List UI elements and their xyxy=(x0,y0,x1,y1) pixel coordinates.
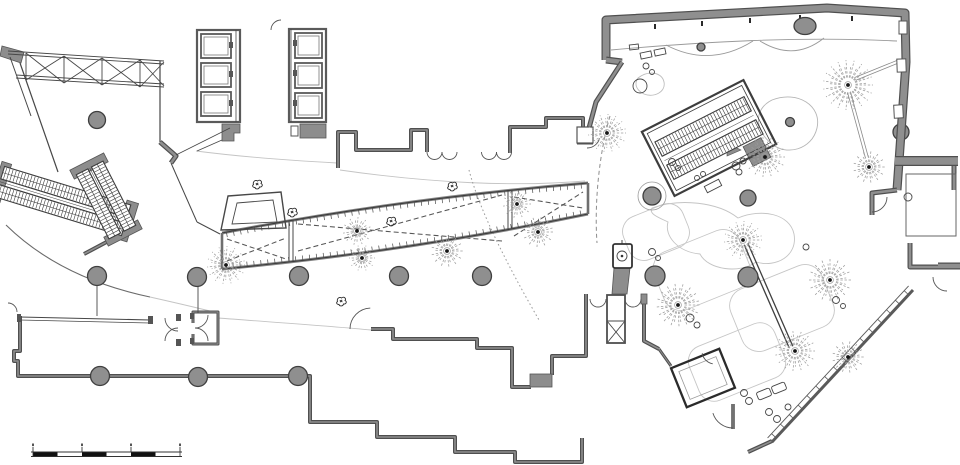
tree-symbol xyxy=(823,60,873,110)
column xyxy=(91,367,110,386)
scale-bar xyxy=(31,444,182,457)
door-swing-arc xyxy=(713,413,733,428)
tree-symbol xyxy=(775,331,815,371)
wall-fills-layer xyxy=(0,46,741,294)
tree-symbol xyxy=(724,221,762,259)
door-swing-arc xyxy=(8,303,17,312)
column xyxy=(697,43,705,51)
column xyxy=(290,267,309,286)
door-swing-arc xyxy=(427,152,442,160)
door-swing-arc xyxy=(482,152,497,160)
furniture-layer xyxy=(617,63,912,423)
door-swing-arc xyxy=(442,152,457,160)
escalators-layer xyxy=(0,80,776,239)
door-swing-arc xyxy=(497,152,512,160)
door-swing-arc xyxy=(195,328,208,341)
elevator-banks-layer xyxy=(197,29,326,136)
door-swing-arc xyxy=(933,277,947,291)
door-swing-arc xyxy=(590,299,606,307)
column xyxy=(794,18,816,35)
column xyxy=(473,267,492,286)
double-lines-layer xyxy=(744,61,897,348)
column xyxy=(390,267,409,286)
plan-svg xyxy=(0,0,960,465)
tree-symbol xyxy=(809,259,851,301)
door-swing-arc xyxy=(625,299,641,307)
tree-symbol xyxy=(343,217,371,245)
door-swing-arc xyxy=(195,315,208,328)
person-sketch xyxy=(448,182,458,191)
tree-symbol xyxy=(503,190,531,218)
escalator xyxy=(642,80,776,196)
column xyxy=(740,190,756,206)
door-swing-arc xyxy=(350,308,370,329)
column xyxy=(643,187,661,205)
column xyxy=(786,118,795,127)
floor-plan xyxy=(0,0,960,465)
column xyxy=(738,267,758,287)
column xyxy=(88,267,107,286)
column xyxy=(189,368,208,387)
person-sketch xyxy=(253,180,263,189)
door-swing-arc xyxy=(271,20,281,30)
person-sketch xyxy=(337,297,347,306)
tree-symbol xyxy=(207,246,245,284)
tree-symbol xyxy=(852,150,886,184)
column xyxy=(89,112,106,129)
tree-symbol xyxy=(349,246,375,271)
door-arcs-layer xyxy=(8,20,947,428)
column xyxy=(645,266,665,286)
column xyxy=(188,268,207,287)
column xyxy=(289,367,308,386)
person-sketch xyxy=(288,208,298,217)
